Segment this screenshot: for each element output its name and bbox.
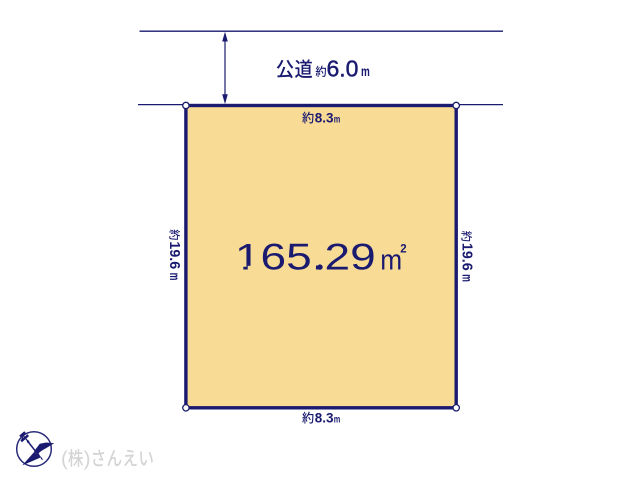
svg-text:m: m — [334, 413, 341, 425]
svg-text:): ) — [84, 448, 91, 470]
svg-text:m: m — [167, 273, 181, 281]
svg-text:m: m — [380, 244, 402, 276]
svg-text:m: m — [361, 64, 370, 80]
svg-text:165.29: 165.29 — [235, 237, 376, 278]
svg-text:m: m — [459, 274, 473, 282]
svg-text:(: ( — [61, 448, 68, 470]
svg-text:m: m — [334, 113, 341, 125]
svg-text:8.3: 8.3 — [315, 411, 334, 426]
svg-text:19.6: 19.6 — [458, 243, 474, 271]
svg-text:6.0: 6.0 — [327, 55, 359, 81]
svg-text:2: 2 — [400, 243, 406, 255]
svg-text:8.3: 8.3 — [315, 110, 334, 125]
svg-text:19.6: 19.6 — [166, 241, 182, 269]
